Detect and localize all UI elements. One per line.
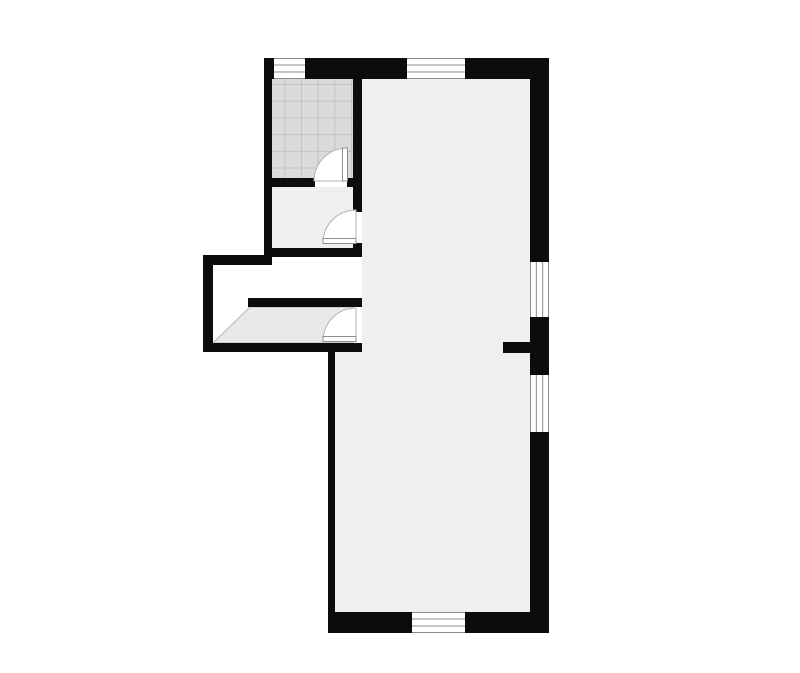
- entry-door-leaf: [323, 337, 356, 342]
- tiled-room-door-leaf: [343, 148, 348, 181]
- east-window-2: [530, 375, 549, 432]
- porch-north-wall: [203, 255, 272, 265]
- east-stub-wall: [503, 342, 530, 353]
- small-room-south-wall: [264, 248, 362, 257]
- porch-west-wall: [203, 255, 213, 352]
- north-window-1: [274, 58, 305, 79]
- lower-room-west-wall: [328, 343, 335, 613]
- east-window-1: [530, 262, 549, 317]
- south-window: [412, 612, 465, 633]
- small-room-door-leaf: [323, 239, 356, 244]
- east-wall: [530, 58, 549, 633]
- floor-plan: [0, 0, 800, 673]
- north-wall: [264, 58, 549, 79]
- porch-south-wall: [203, 343, 362, 352]
- west-upper-wall: [264, 58, 272, 265]
- floor-plan-page: [0, 0, 800, 673]
- tiled-room-south-wall: [264, 178, 315, 187]
- porch-inner-wall: [248, 298, 362, 307]
- north-window-2: [407, 58, 465, 79]
- main-room-floor: [335, 79, 530, 613]
- core-wall-upper: [353, 79, 362, 212]
